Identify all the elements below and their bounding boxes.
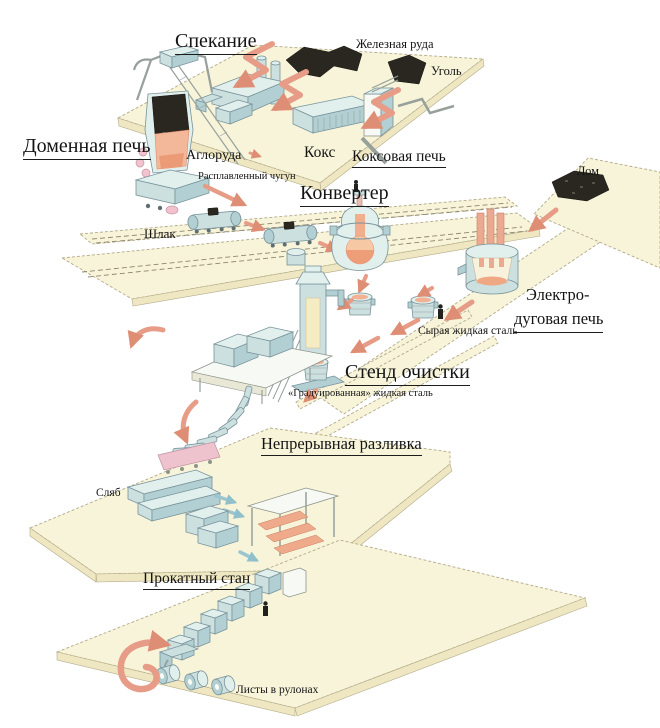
label-electric-arc-furnace: Электро- дуговая печь xyxy=(514,283,603,333)
label-converter: Конвертер xyxy=(300,182,389,207)
label-coke-oven: Коксовая печь xyxy=(352,148,446,168)
ladle-illustration xyxy=(408,296,438,318)
label-molten-iron: Расплавленный чугун xyxy=(198,171,296,183)
label-sinter-ore: Аглоруда xyxy=(186,148,241,164)
label-sintering: Спекание xyxy=(175,30,257,55)
label-sheet-coils: Листы в рулонах xyxy=(236,684,318,697)
label-rolling-mill: Прокатный стан xyxy=(143,570,250,590)
label-slag: Шлак xyxy=(144,227,176,242)
label-continuous-casting: Непрерывная разливка xyxy=(261,435,422,456)
label-coke: Кокс xyxy=(304,144,335,162)
label-refining-stand: Стенд очистки xyxy=(345,361,470,386)
label-raw-liquid-steel: Сырая жидкая сталь xyxy=(418,325,518,338)
worker-figure xyxy=(438,304,443,319)
label-coal: Уголь xyxy=(431,64,462,78)
label-graded-steel: «Градуированная» жидкая сталь xyxy=(288,388,433,400)
label-scrap: Лом xyxy=(577,164,599,178)
label-eaf-line1: Электро- xyxy=(514,283,603,307)
label-eaf-line2: дуговая печь xyxy=(514,307,603,333)
label-slab: Сляб xyxy=(96,487,121,500)
diagram-artwork xyxy=(0,0,660,728)
label-blast-furnace: Доменная печь xyxy=(23,135,151,160)
worker-figure xyxy=(263,601,268,616)
label-iron-ore: Железная руда xyxy=(356,37,434,51)
steelmaking-process-diagram: Спекание Железная руда Уголь Доменная пе… xyxy=(0,0,660,728)
